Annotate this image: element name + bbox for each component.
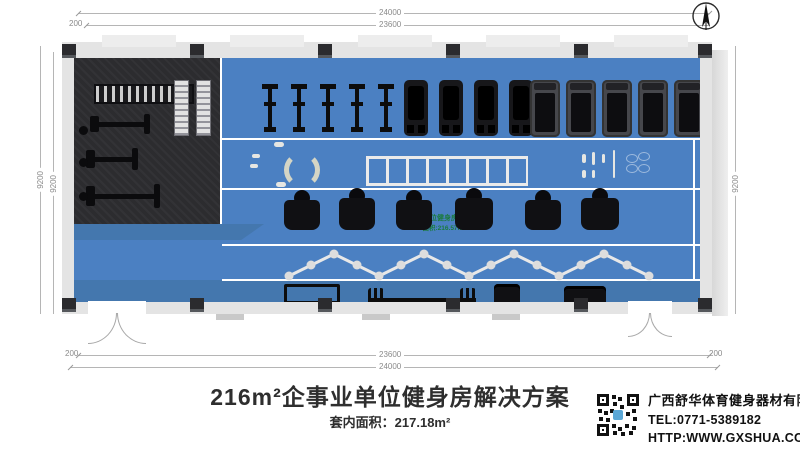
machine-icon [394, 190, 434, 234]
window-sill [362, 314, 390, 320]
climber-icon [439, 80, 463, 136]
window-top [230, 35, 304, 47]
treadmill-icon [638, 80, 668, 137]
building-outline: 企事业单位健身房解决方案 面积:216.57m² [62, 42, 712, 314]
door-leaf [628, 313, 650, 337]
wall-column [574, 44, 588, 58]
building-side-shadow [712, 50, 728, 316]
window-top [358, 35, 432, 47]
dim-label-bottom-inner: 23600 [376, 350, 404, 359]
bike-icon [320, 84, 336, 132]
wall-column [62, 44, 76, 58]
dim-label-top-outer: 24000 [376, 8, 404, 17]
post-icon [79, 158, 88, 167]
company-url: HTTP:WWW.GXSHUA.COM [648, 431, 800, 445]
dim-label-top-offset: 200 [66, 19, 85, 28]
climber-icon [404, 80, 428, 136]
rack-light-icon [196, 80, 211, 136]
entrance-door-left [88, 301, 146, 345]
bike-icon [262, 84, 278, 132]
treadmill-icon [602, 80, 632, 137]
gym-interior: 企事业单位健身房解决方案 面积:216.57m² [74, 58, 700, 302]
machine-icon [336, 188, 378, 234]
entrance-door-right [628, 301, 672, 337]
machine-icon [282, 190, 322, 234]
bike-icon [349, 84, 365, 132]
wall-column [446, 44, 460, 58]
post-icon [79, 192, 88, 201]
wall-column [318, 44, 332, 58]
window-top [486, 35, 560, 47]
dim-label-left-inner: 9200 [49, 172, 58, 196]
post-icon [79, 126, 88, 135]
window-top [102, 35, 176, 47]
station-icon [86, 186, 160, 206]
window-top [614, 35, 688, 47]
company-tel: TEL:0771-5389182 [648, 413, 800, 427]
machine-icon [522, 190, 564, 234]
equipment-layer [74, 58, 700, 302]
machine-sm-icon [494, 284, 520, 302]
wall-column [190, 44, 204, 58]
treadmill-icon [566, 80, 596, 137]
station-icon [86, 150, 138, 168]
bike-icon [291, 84, 307, 132]
dim-label-right-outer: 9200 [731, 172, 740, 196]
wall-column [190, 298, 204, 312]
machine-icon [578, 188, 622, 234]
station-icon [90, 116, 150, 132]
dim-label-top-inner: 23600 [376, 20, 404, 29]
bike-icon [378, 84, 394, 132]
treadmill-icon [530, 80, 560, 137]
door-leaf [88, 313, 117, 344]
machine-icon [452, 188, 496, 234]
window-sill [492, 314, 520, 320]
door-leaf [650, 313, 672, 337]
floorplan-sheet: 24000 23600 200 9200 9200 9200 9200 [0, 0, 800, 450]
wall-column [318, 298, 332, 312]
company-name: 广西舒华体育健身器材有限公司 [648, 390, 800, 409]
door-leaf [117, 313, 146, 344]
window-sill [216, 314, 244, 320]
wall-column [62, 298, 76, 312]
dim-label-bottom-outer: 24000 [376, 362, 404, 371]
treadmill-icon [674, 80, 700, 137]
wall-column [698, 44, 712, 58]
wall-column [446, 298, 460, 312]
climber-icon [474, 80, 498, 136]
wall-column [574, 298, 588, 312]
qr-code [596, 393, 640, 437]
wall-column [698, 298, 712, 312]
north-arrow-icon [690, 1, 722, 33]
rack-light-icon [174, 80, 189, 136]
dim-label-left-outer: 9200 [36, 168, 45, 192]
dim-tick [715, 365, 721, 371]
